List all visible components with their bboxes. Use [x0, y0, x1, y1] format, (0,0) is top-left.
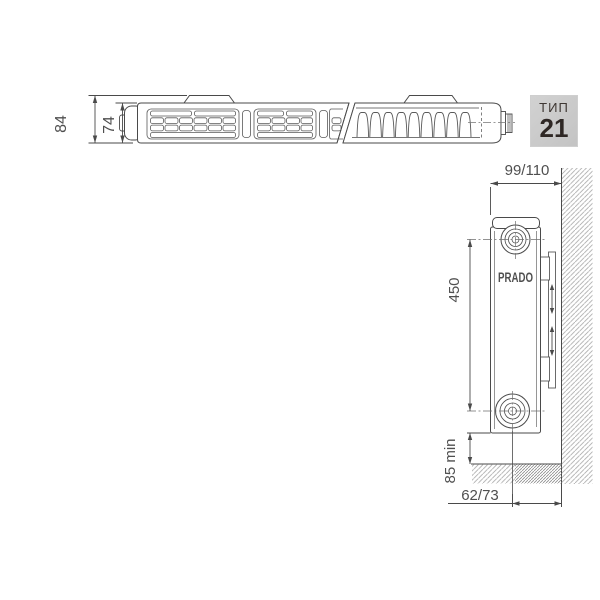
- radiator-technical-drawing: 84 74: [0, 0, 600, 600]
- drawing-canvas: 84 74: [0, 0, 600, 600]
- dim-85-min-label: 85 min: [442, 438, 459, 483]
- bracket-bump-left: [184, 96, 235, 104]
- dim-84-label: 84: [53, 115, 70, 133]
- dim-99-110-label: 99/110: [505, 162, 550, 179]
- type-badge: ТИП 21: [530, 95, 578, 147]
- side-view: PRADO: [448, 168, 593, 507]
- floor-hatch-light: [472, 465, 515, 484]
- top-view: [120, 96, 516, 144]
- dim-450-label: 450: [446, 277, 463, 302]
- dim-62-73-label: 62/73: [461, 487, 499, 504]
- dim-74-label: 74: [101, 116, 118, 134]
- floor-hatch-dense: [515, 465, 562, 484]
- prado-logo: PRADO: [498, 270, 533, 285]
- side-connection-stub: [501, 112, 512, 135]
- bracket-bump-right: [404, 96, 458, 104]
- wall-hatch: [562, 168, 593, 484]
- type-badge-number: 21: [540, 115, 569, 141]
